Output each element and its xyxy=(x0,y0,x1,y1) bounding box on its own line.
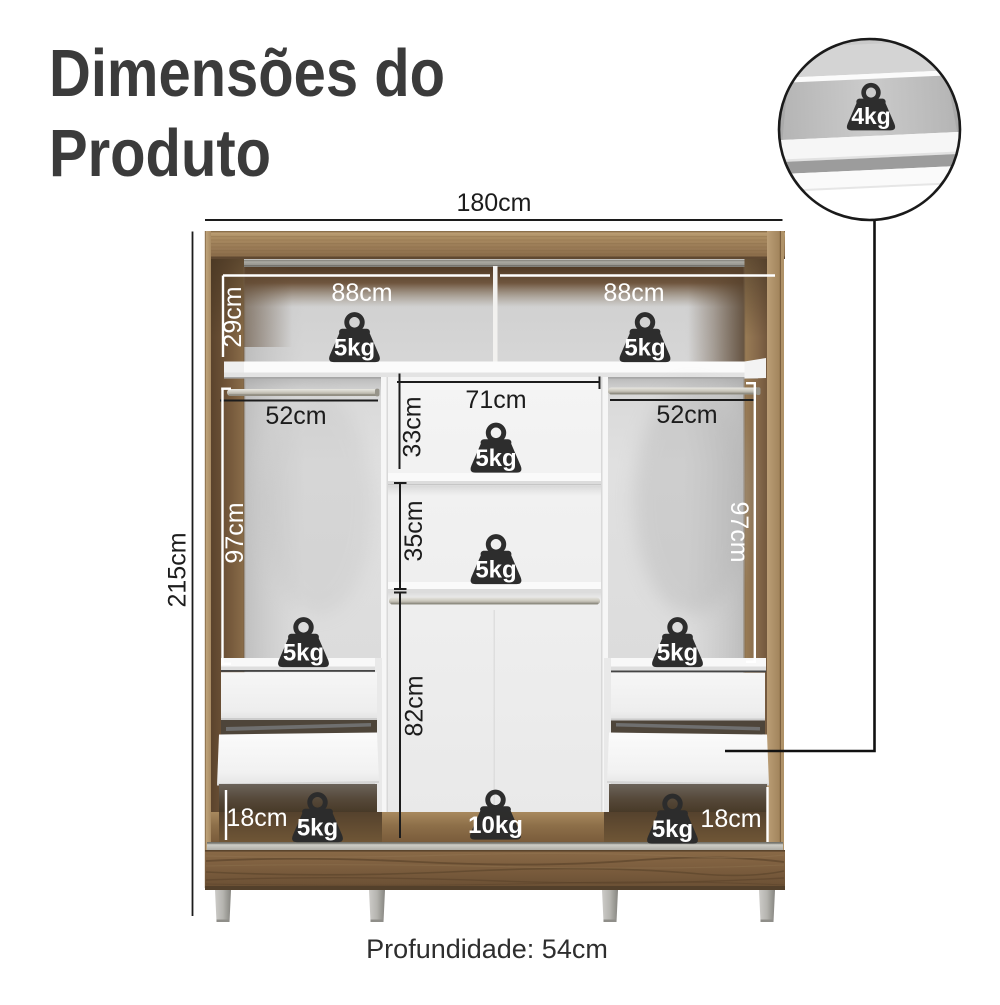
svg-text:Profundidade: 54cm: Profundidade: 54cm xyxy=(366,934,608,964)
svg-text:82cm: 82cm xyxy=(401,675,429,736)
svg-text:52cm: 52cm xyxy=(656,401,717,429)
svg-text:52cm: 52cm xyxy=(265,402,326,430)
svg-text:5kg: 5kg xyxy=(283,640,324,667)
svg-text:5kg: 5kg xyxy=(652,816,693,843)
svg-text:5kg: 5kg xyxy=(297,815,338,842)
svg-text:71cm: 71cm xyxy=(465,386,526,414)
svg-text:5kg: 5kg xyxy=(657,640,698,667)
svg-text:10kg: 10kg xyxy=(468,812,523,839)
svg-text:33cm: 33cm xyxy=(399,396,427,457)
svg-text:5kg: 5kg xyxy=(334,335,375,362)
svg-text:97cm: 97cm xyxy=(221,502,249,563)
svg-text:215cm: 215cm xyxy=(164,532,192,607)
svg-text:180cm: 180cm xyxy=(456,189,531,217)
svg-text:18cm: 18cm xyxy=(226,804,287,832)
svg-text:88cm: 88cm xyxy=(331,279,392,307)
svg-text:29cm: 29cm xyxy=(219,286,247,347)
svg-text:4kg: 4kg xyxy=(851,103,890,129)
svg-text:88cm: 88cm xyxy=(603,279,664,307)
svg-text:5kg: 5kg xyxy=(624,335,665,362)
svg-text:18cm: 18cm xyxy=(700,805,761,833)
svg-text:35cm: 35cm xyxy=(400,500,428,561)
svg-text:97cm: 97cm xyxy=(725,501,753,562)
svg-text:Dimensões do: Dimensões do xyxy=(49,36,445,111)
svg-text:5kg: 5kg xyxy=(475,445,516,472)
svg-text:5kg: 5kg xyxy=(475,557,516,584)
svg-text:Produto: Produto xyxy=(49,116,271,191)
